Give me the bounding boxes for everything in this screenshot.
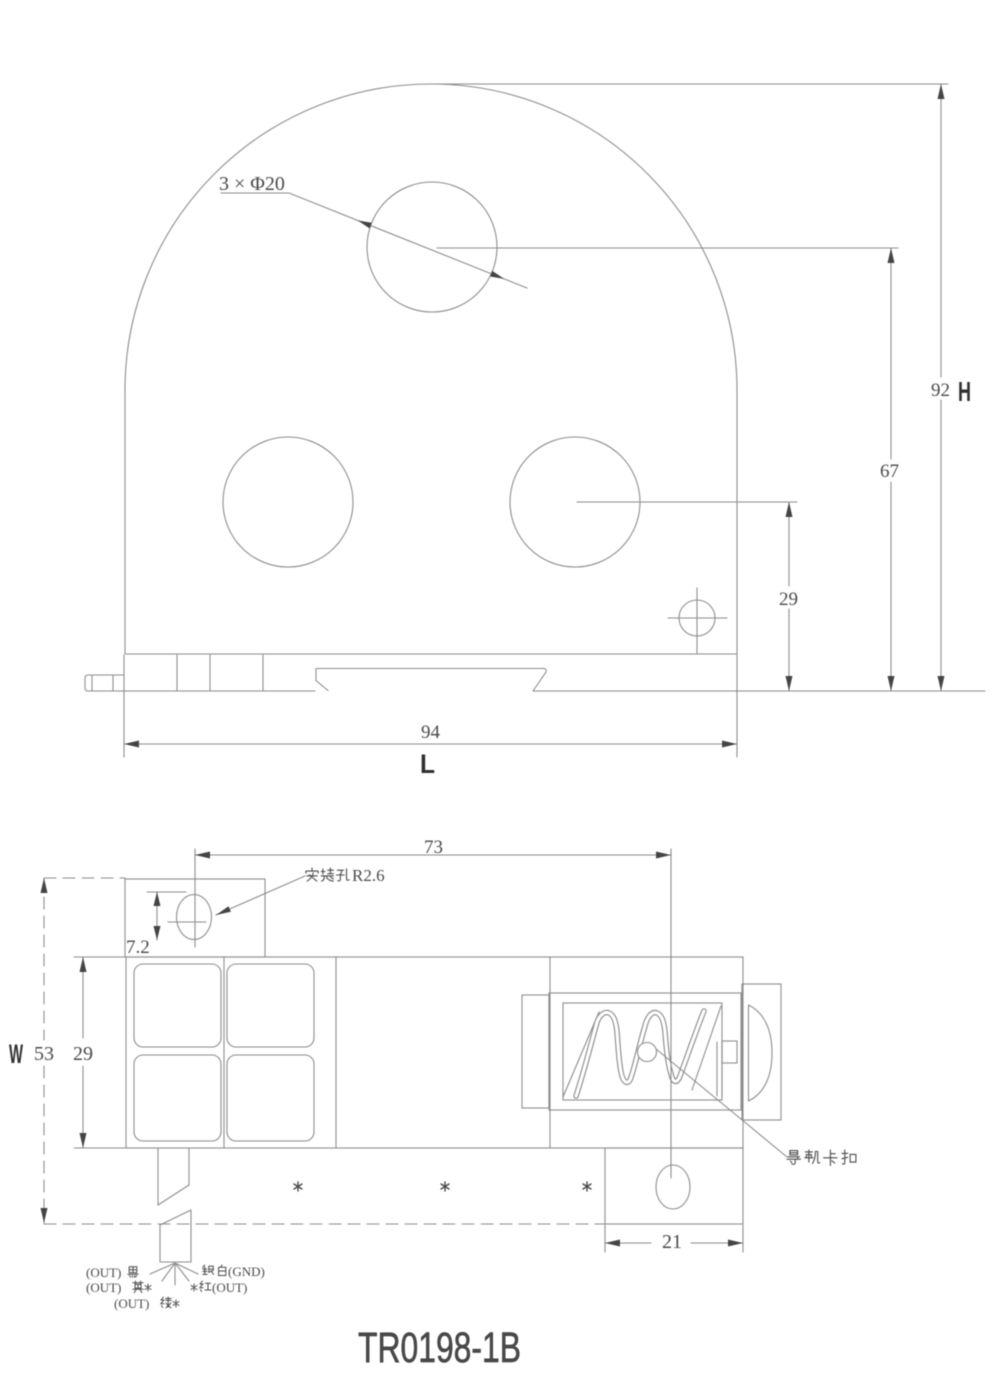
svg-text:H: H: [958, 376, 971, 407]
svg-text:(GND): (GND): [228, 1264, 265, 1279]
svg-text:W: W: [9, 1039, 23, 1069]
svg-text:92: 92: [931, 380, 950, 401]
svg-text:(OUT): (OUT): [212, 1280, 247, 1295]
svg-text:94: 94: [421, 722, 441, 743]
svg-text:21: 21: [662, 1231, 682, 1253]
svg-text:29: 29: [779, 589, 798, 610]
svg-text:67: 67: [880, 461, 899, 482]
svg-text:(OUT): (OUT): [86, 1265, 121, 1280]
svg-text:(OUT): (OUT): [114, 1296, 149, 1311]
svg-text:3 × Φ20: 3 × Φ20: [219, 173, 285, 195]
svg-text:R2.6: R2.6: [352, 866, 385, 885]
svg-text:7.2: 7.2: [126, 937, 150, 958]
svg-text:L: L: [420, 749, 435, 779]
svg-text:29: 29: [73, 1043, 93, 1065]
svg-text:TR0198-1B: TR0198-1B: [358, 1324, 521, 1372]
svg-text:73: 73: [424, 837, 443, 858]
svg-text:53: 53: [34, 1043, 54, 1065]
svg-text:(OUT): (OUT): [86, 1280, 121, 1295]
